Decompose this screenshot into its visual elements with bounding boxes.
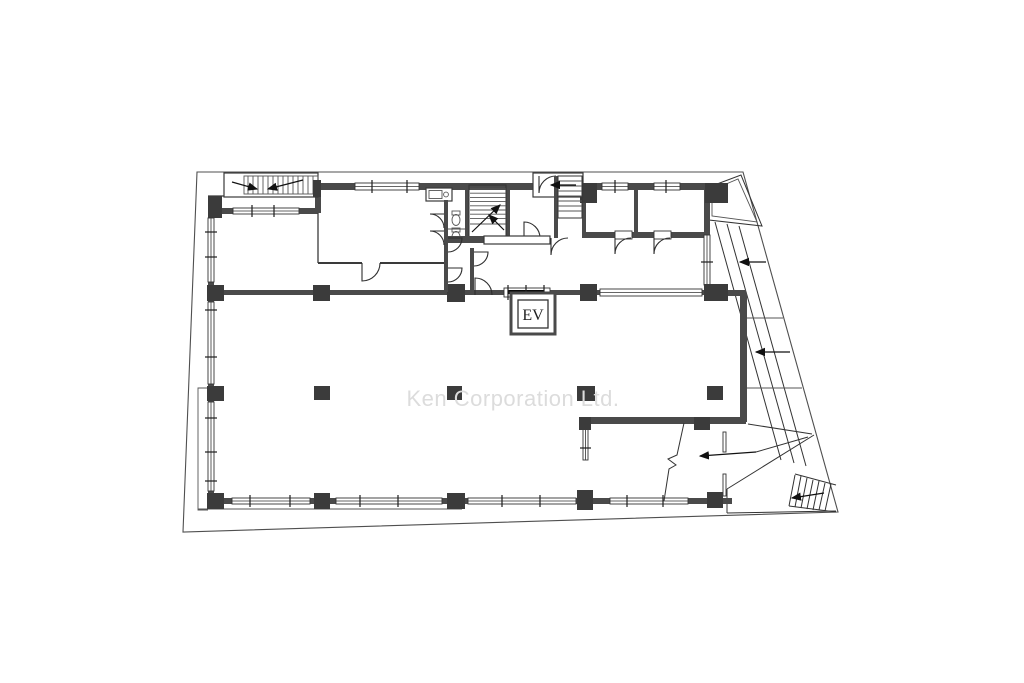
break-line xyxy=(664,423,684,501)
elevator-label: EV xyxy=(522,307,544,324)
column xyxy=(707,386,723,400)
door-arc xyxy=(551,238,568,255)
column xyxy=(207,386,224,401)
column xyxy=(579,417,591,430)
column xyxy=(705,183,728,203)
column xyxy=(707,492,723,508)
door-arc xyxy=(474,252,488,266)
stair-main xyxy=(465,185,510,237)
column xyxy=(207,285,224,301)
column xyxy=(704,284,728,301)
exterior-ramp-and-walkway xyxy=(709,175,836,513)
floor-plan-drawing: EV Ken Corporation Ltd. xyxy=(0,0,1024,683)
door-arc xyxy=(615,238,631,254)
door-arc xyxy=(654,238,670,254)
column xyxy=(694,417,710,430)
building-walls xyxy=(208,183,747,506)
column xyxy=(313,285,330,301)
column xyxy=(314,386,330,400)
entrance-arrow xyxy=(700,452,756,456)
watermark-text: Ken Corporation Ltd. xyxy=(406,386,619,411)
kitchen-counter xyxy=(426,188,452,201)
elevator-shaft: EV xyxy=(504,285,555,334)
door-arc xyxy=(430,231,444,245)
column xyxy=(314,493,330,509)
toilet-room xyxy=(430,200,466,292)
column xyxy=(577,490,593,510)
floor-plan-page: EV Ken Corporation Ltd. xyxy=(0,0,1024,683)
column xyxy=(207,493,224,509)
door-arc xyxy=(448,268,462,282)
door-arc xyxy=(430,214,444,228)
stair-direction-arrow xyxy=(489,215,504,230)
column xyxy=(447,493,465,509)
toilet-fixture xyxy=(452,215,460,226)
door-arc xyxy=(362,263,380,281)
column xyxy=(447,284,465,302)
property-boundary xyxy=(183,172,838,532)
stair-annex-top-left xyxy=(224,173,321,197)
column xyxy=(580,284,597,301)
